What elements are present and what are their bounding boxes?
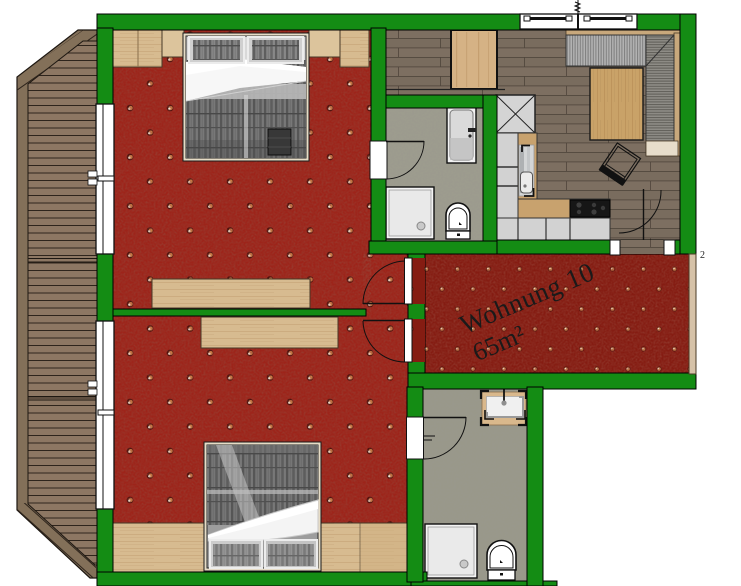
svg-text:2: 2: [700, 250, 705, 261]
